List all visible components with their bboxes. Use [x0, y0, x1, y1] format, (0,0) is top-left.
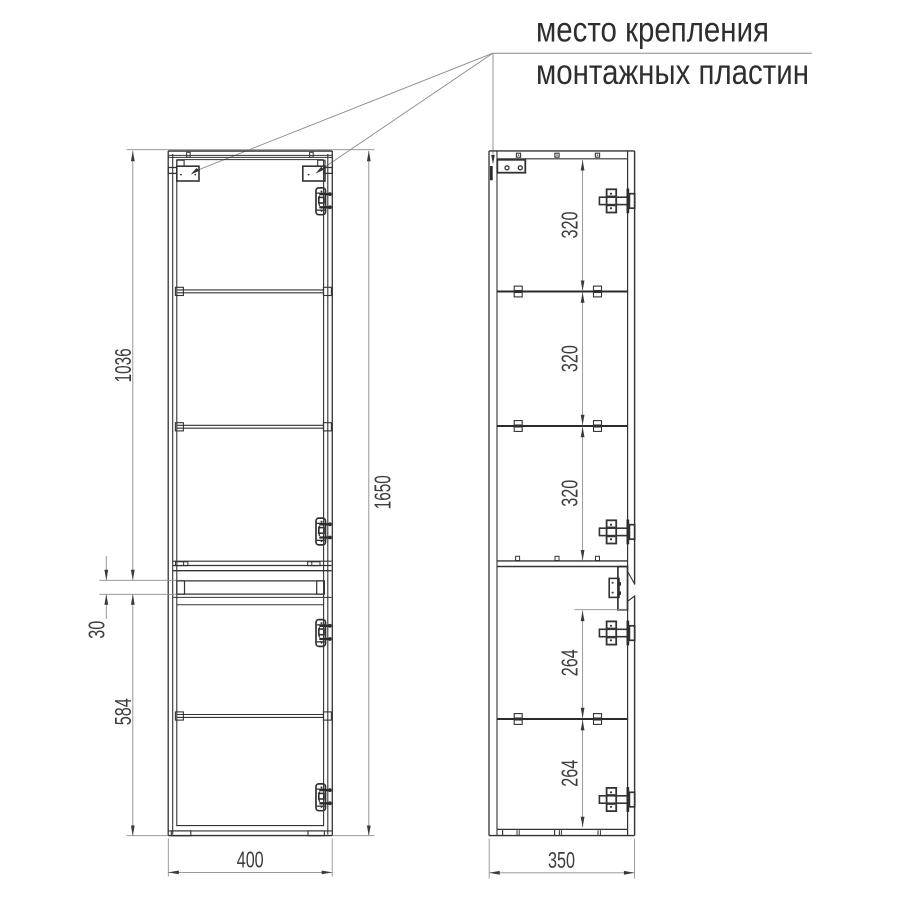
- svg-text:400: 400: [237, 847, 264, 873]
- svg-text:350: 350: [548, 847, 575, 873]
- svg-text:30: 30: [84, 621, 110, 639]
- svg-text:1036: 1036: [110, 348, 136, 382]
- svg-text:1650: 1650: [369, 475, 395, 509]
- svg-text:584: 584: [110, 698, 136, 725]
- svg-text:320: 320: [557, 480, 583, 507]
- svg-text:264: 264: [557, 760, 583, 787]
- svg-text:место крепления: место крепления: [536, 11, 769, 50]
- svg-text:320: 320: [557, 212, 583, 239]
- svg-text:монтажных пластин: монтажных пластин: [536, 53, 809, 92]
- svg-text:320: 320: [557, 345, 583, 372]
- svg-text:264: 264: [557, 649, 583, 676]
